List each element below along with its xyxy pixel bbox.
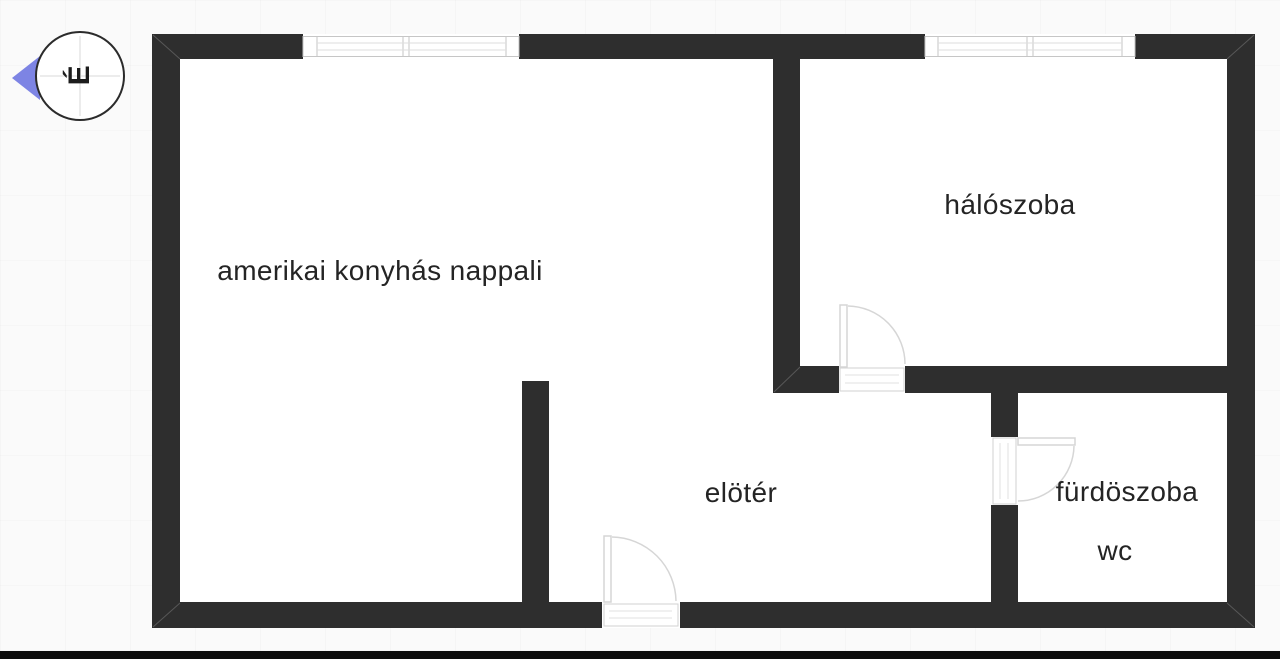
wall-bottom-segment-2 [680, 602, 1255, 628]
wall-bedroom-bottom-left [773, 366, 839, 393]
wall-top-segment-2 [519, 34, 925, 59]
wall-left [152, 34, 180, 628]
door-leaf-entrance [604, 536, 611, 602]
floor-plan-drawing [0, 0, 1280, 659]
door-threshold-bedroom [840, 368, 904, 391]
wall-bottom-segment-1 [152, 602, 602, 628]
door-threshold-entrance [604, 604, 678, 626]
room-label-bedroom: hálószoba [944, 189, 1075, 221]
wall-top-segment-1 [152, 34, 303, 59]
door-leaf-bedroom [840, 305, 847, 367]
room-label-wc: wc [1097, 535, 1132, 567]
door-threshold-bathroom [993, 438, 1016, 504]
wall-top-segment-3 [1135, 34, 1255, 59]
bottom-edge-bar [0, 651, 1280, 659]
door-leaf-bathroom [1018, 438, 1075, 445]
room-label-hall: elötér [705, 477, 777, 509]
wall-right [1227, 34, 1255, 628]
room-label-living: amerikai konyhás nappali [217, 255, 543, 287]
floor-area [152, 34, 1255, 628]
window-bedroom-icon [925, 37, 1135, 57]
wall-bedroom-bottom-right [905, 366, 1255, 393]
window-living-room-icon [303, 37, 519, 57]
wall-hall-bathroom-upper [991, 393, 1018, 437]
compass-north-letter: É [63, 65, 97, 85]
floor-plan-page: É amerikai konyhás nappali hálószoba elö… [0, 0, 1280, 659]
wall-hall-bathroom-lower [991, 505, 1018, 602]
room-label-bathroom: fürdöszoba [1056, 476, 1199, 508]
wall-living-bedroom-divider [773, 59, 800, 366]
wall-living-hall-stub [522, 381, 549, 602]
